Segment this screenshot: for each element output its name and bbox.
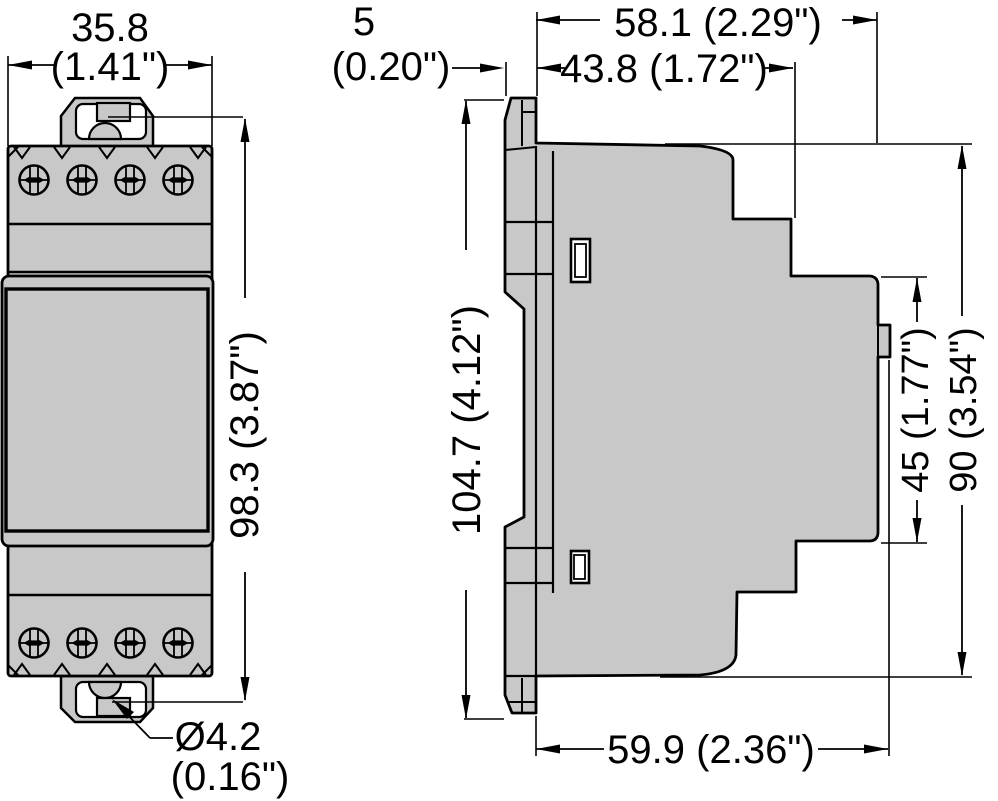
screw — [164, 166, 193, 195]
front-width-mm-label: 35.8 — [71, 6, 149, 50]
front-width-in-label: (1.41") — [51, 45, 170, 89]
height-total-label: 104.7 (4.12") — [445, 305, 489, 535]
side-slot-lower — [571, 551, 589, 583]
clip-tab — [97, 103, 130, 121]
dimensional-drawing: 35.8 (1.41") 98.3 (3.87") Ø4.2 (0.16") 5… — [0, 0, 998, 801]
terminal-protrusion-mm-label: 5 — [353, 0, 375, 44]
side-view — [505, 98, 890, 713]
front-height-label: 98.3 (3.87") — [223, 331, 267, 539]
screw — [164, 629, 193, 658]
screw — [20, 629, 49, 658]
screw — [68, 629, 97, 658]
display-window — [6, 289, 208, 531]
side-body — [505, 98, 890, 713]
depth-upper-label: 43.8 (1.72") — [560, 47, 768, 91]
screw — [116, 166, 145, 195]
front-top-clip — [61, 98, 153, 148]
terminal-protrusion-in-label: (0.20") — [332, 45, 451, 89]
front-bottom-clip — [61, 676, 153, 722]
screw — [116, 629, 145, 658]
height-rear-label: 45 (1.77") — [895, 327, 937, 493]
depth-total-label: 58.1 (2.29") — [614, 1, 822, 45]
front-view — [2, 98, 213, 722]
technical-drawing-page: 35.8 (1.41") 98.3 (3.87") Ø4.2 (0.16") 5… — [0, 0, 998, 801]
dim-terminal-protrusion: 5 (0.20") — [332, 0, 506, 96]
side-slot-upper — [571, 239, 590, 282]
depth-bottom-label: 59.9 (2.36") — [607, 728, 815, 772]
screw — [68, 166, 97, 195]
hole-diameter-mm-label: Ø4.2 — [175, 715, 262, 759]
hole-diameter-in-label: (0.16") — [171, 755, 290, 799]
screw — [20, 166, 49, 195]
dim-height-total: 104.7 (4.12") — [445, 100, 504, 719]
height-body-label: 90 (3.54") — [943, 327, 985, 493]
